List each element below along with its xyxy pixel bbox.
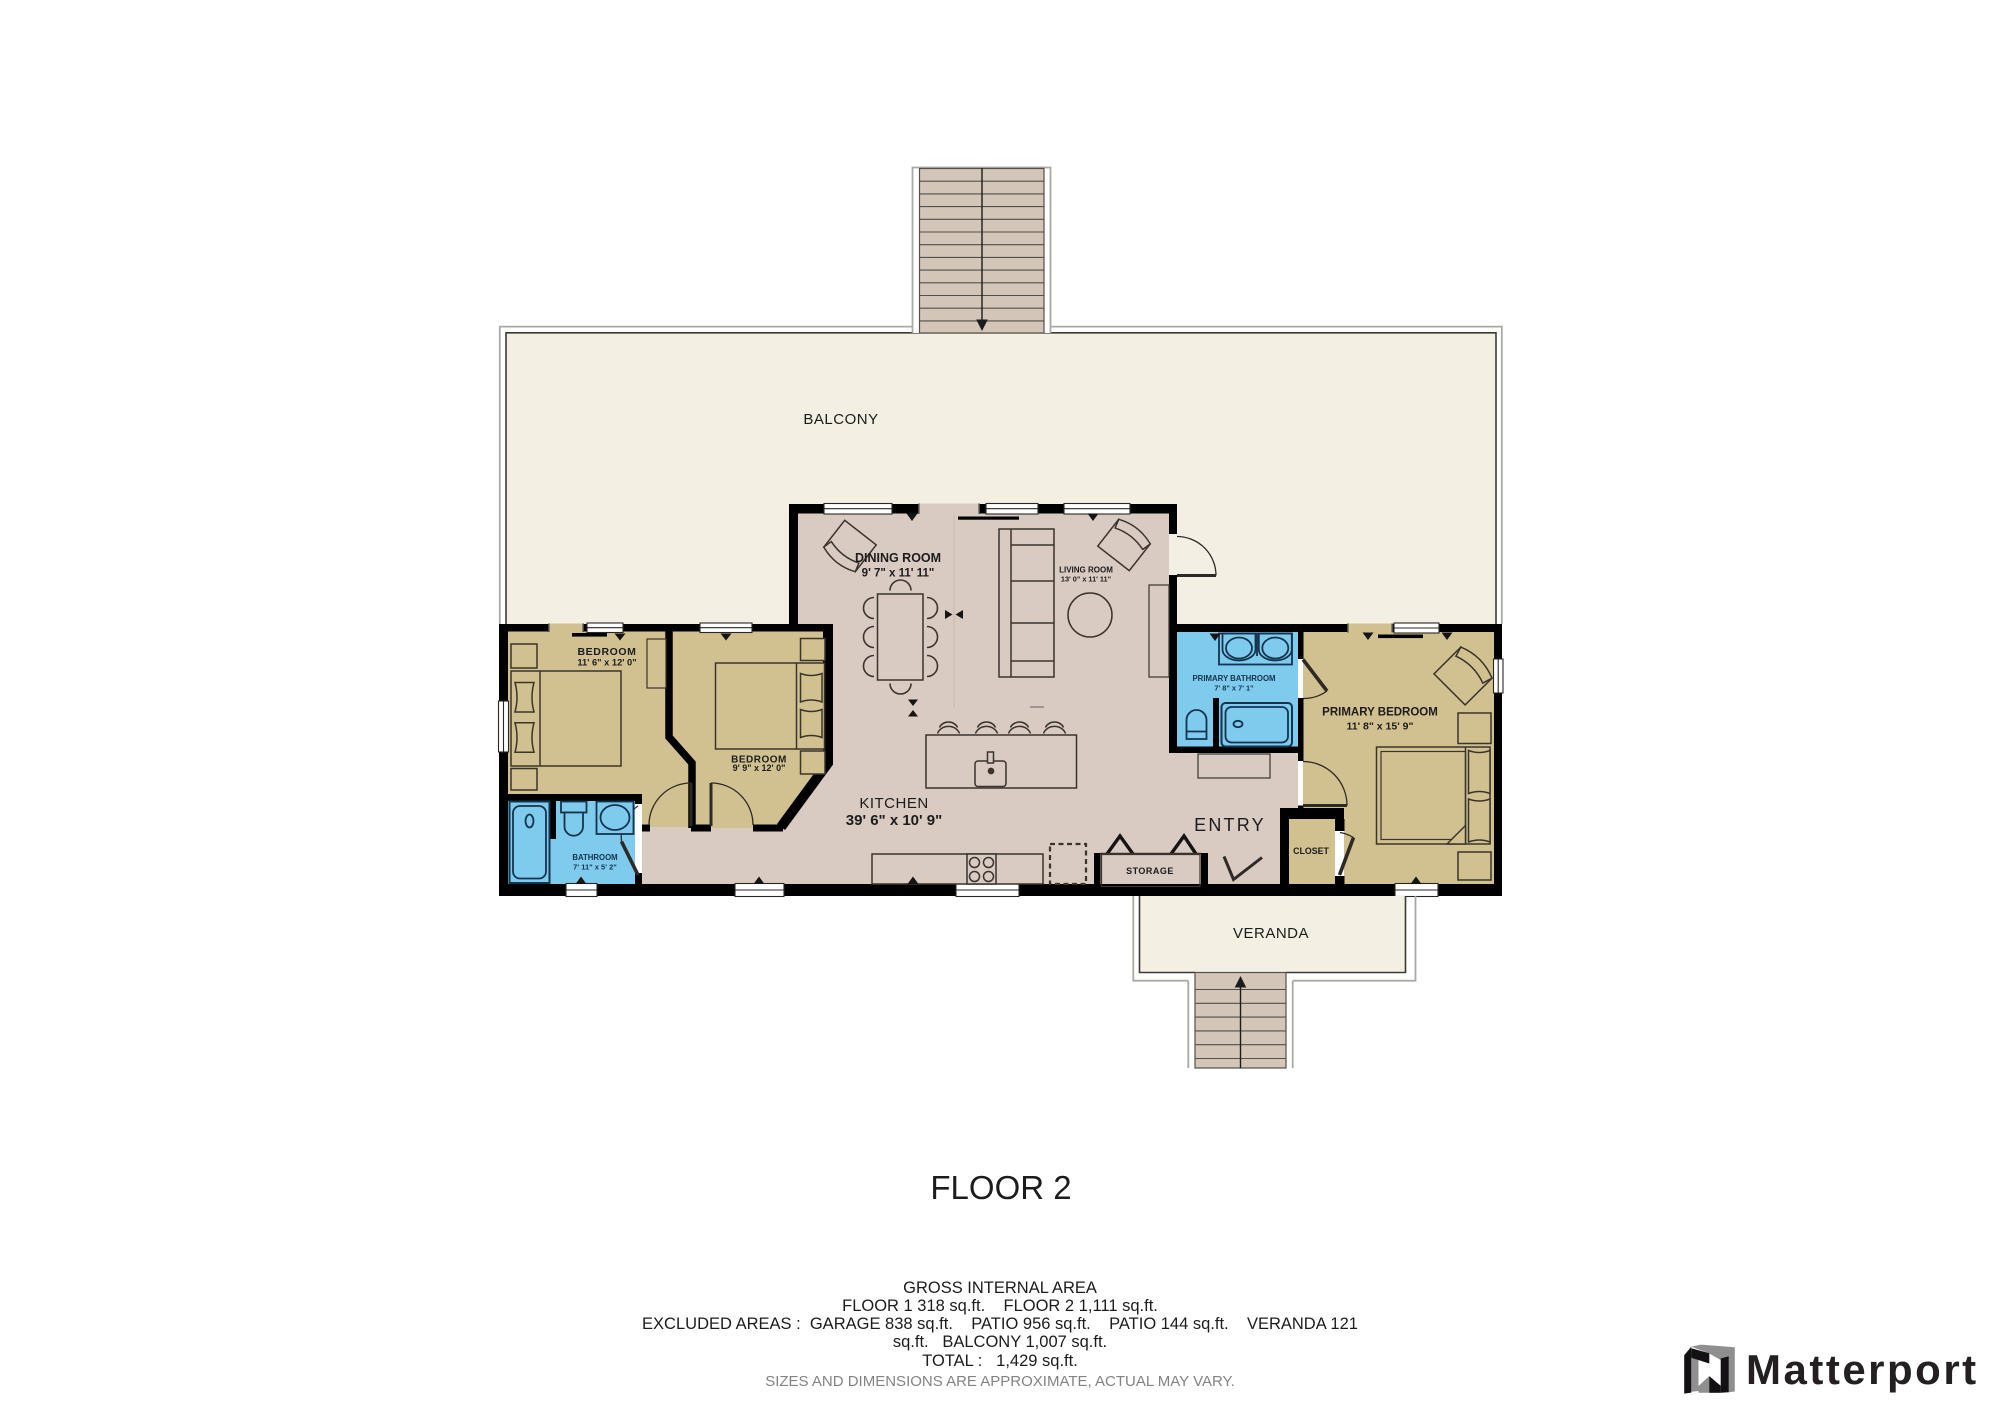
svg-text:BALCONY: BALCONY bbox=[803, 411, 878, 428]
svg-text:FLOOR 2: FLOOR 2 bbox=[930, 1169, 1071, 1206]
svg-text:LIVING ROOM: LIVING ROOM bbox=[1059, 566, 1113, 575]
svg-text:sq.ft. BALCONY 1,007 sq.ft.: sq.ft. BALCONY 1,007 sq.ft. bbox=[893, 1333, 1107, 1351]
svg-text:VERANDA: VERANDA bbox=[1233, 925, 1309, 942]
svg-text:Matterport: Matterport bbox=[1746, 1346, 1979, 1393]
svg-text:GROSS INTERNAL AREA: GROSS INTERNAL AREA bbox=[903, 1279, 1097, 1297]
svg-text:7' 8" x 7' 1": 7' 8" x 7' 1" bbox=[1214, 684, 1254, 693]
svg-text:ENTRY: ENTRY bbox=[1194, 815, 1266, 835]
svg-text:9' 7" x 11' 11": 9' 7" x 11' 11" bbox=[862, 568, 935, 580]
svg-text:STORAGE: STORAGE bbox=[1126, 866, 1174, 876]
svg-text:PRIMARY BATHROOM: PRIMARY BATHROOM bbox=[1192, 674, 1275, 683]
svg-text:9' 9" x 12' 0": 9' 9" x 12' 0" bbox=[733, 763, 786, 773]
svg-text:BATHROOM: BATHROOM bbox=[572, 853, 617, 862]
svg-text:SIZES AND DIMENSIONS ARE APPRO: SIZES AND DIMENSIONS ARE APPROXIMATE, AC… bbox=[765, 1373, 1235, 1390]
svg-text:TOTAL : 1,429 sq.ft.: TOTAL : 1,429 sq.ft. bbox=[922, 1352, 1078, 1370]
svg-text:DINING ROOM: DINING ROOM bbox=[855, 551, 941, 565]
svg-text:BEDROOM: BEDROOM bbox=[577, 646, 636, 658]
svg-text:PRIMARY BEDROOM: PRIMARY BEDROOM bbox=[1322, 707, 1438, 719]
svg-text:11' 8" x 15' 9": 11' 8" x 15' 9" bbox=[1347, 721, 1414, 733]
svg-text:EXCLUDED AREAS : GARAGE 838 s: EXCLUDED AREAS : GARAGE 838 sq.ft. PATIO… bbox=[642, 1315, 1358, 1333]
svg-text:FLOOR 1 318 sq.ft. FLOOR 2: FLOOR 1 318 sq.ft. FLOOR 2 1,111 sq.ft. bbox=[842, 1297, 1158, 1315]
svg-text:39' 6" x 10' 9": 39' 6" x 10' 9" bbox=[846, 812, 942, 829]
svg-text:13' 0" x 11' 11": 13' 0" x 11' 11" bbox=[1061, 575, 1111, 584]
svg-text:7' 11" x 5' 2": 7' 11" x 5' 2" bbox=[573, 863, 617, 872]
svg-text:CLOSET: CLOSET bbox=[1293, 846, 1329, 856]
svg-text:11' 6" x 12' 0": 11' 6" x 12' 0" bbox=[577, 658, 636, 668]
svg-text:KITCHEN: KITCHEN bbox=[859, 795, 928, 812]
